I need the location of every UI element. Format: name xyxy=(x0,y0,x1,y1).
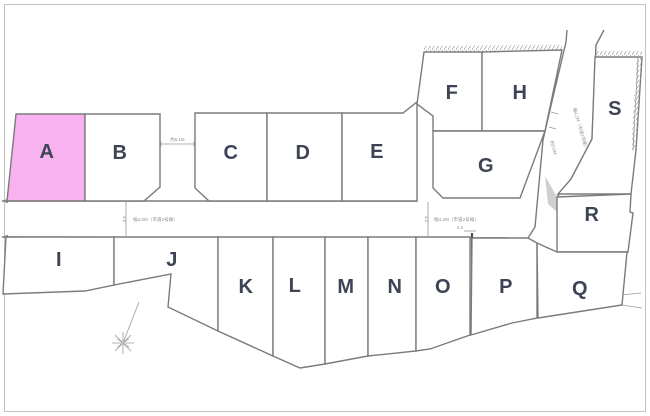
annotation-right-road-width: 4.2 xyxy=(424,216,429,223)
lot-label-q: Q xyxy=(572,278,588,300)
road-corner-shade xyxy=(545,176,557,212)
lot-label-c: C xyxy=(224,142,239,164)
annotation-gap-dimension: 約5.1M xyxy=(170,136,184,143)
lot-label-h: H xyxy=(513,82,528,104)
lot-m[interactable] xyxy=(325,237,368,364)
annotation-left-road-label: 幅4.0M（市道2号線） xyxy=(133,216,178,223)
annotation-diagonal-road-label: 幅4.2M（市道1号線） xyxy=(571,107,590,150)
hatch-edge-s-top-icon xyxy=(595,51,642,57)
north-symbol-icon xyxy=(112,302,139,354)
road-tick xyxy=(551,112,558,114)
lot-label-d: D xyxy=(296,142,311,164)
lot-label-f: F xyxy=(446,82,459,104)
lot-label-j: J xyxy=(166,249,178,271)
lot-label-n: N xyxy=(388,276,403,298)
lot-l[interactable] xyxy=(273,237,325,368)
site-plan-map: A B C D E F H G S R I J K L M N O P Q 約5… xyxy=(0,0,650,416)
lot-label-l: L xyxy=(289,275,302,297)
lot-label-g: G xyxy=(478,155,494,177)
lot-label-b: B xyxy=(113,142,128,164)
boundary-tick xyxy=(622,293,641,295)
lot-label-o: O xyxy=(435,276,451,298)
annotation-right-road-label: 幅4.2M（市道2号線） xyxy=(434,216,479,223)
lot-s[interactable] xyxy=(558,57,642,194)
lot-label-e: E xyxy=(370,141,384,163)
annotation-diagonal-road-width: 約5.0M xyxy=(548,140,559,156)
lot-label-p: P xyxy=(499,276,513,298)
boundary-extensions xyxy=(622,293,642,308)
lot-label-k: K xyxy=(239,276,254,298)
boundary-tick xyxy=(622,305,642,308)
lot-label-s: S xyxy=(608,98,622,120)
site-plan-page: A B C D E F H G S R I J K L M N O P Q 約5… xyxy=(0,0,650,416)
lot-label-a: A xyxy=(40,141,55,163)
lot-label-i: I xyxy=(56,249,62,271)
road-tick xyxy=(549,127,556,129)
annotation-vertical-road-width: 4.2 xyxy=(457,225,464,230)
lot-label-r: R xyxy=(585,204,600,226)
annotation-left-road-width: 4.0 xyxy=(122,216,127,223)
lot-label-m: M xyxy=(337,276,354,298)
